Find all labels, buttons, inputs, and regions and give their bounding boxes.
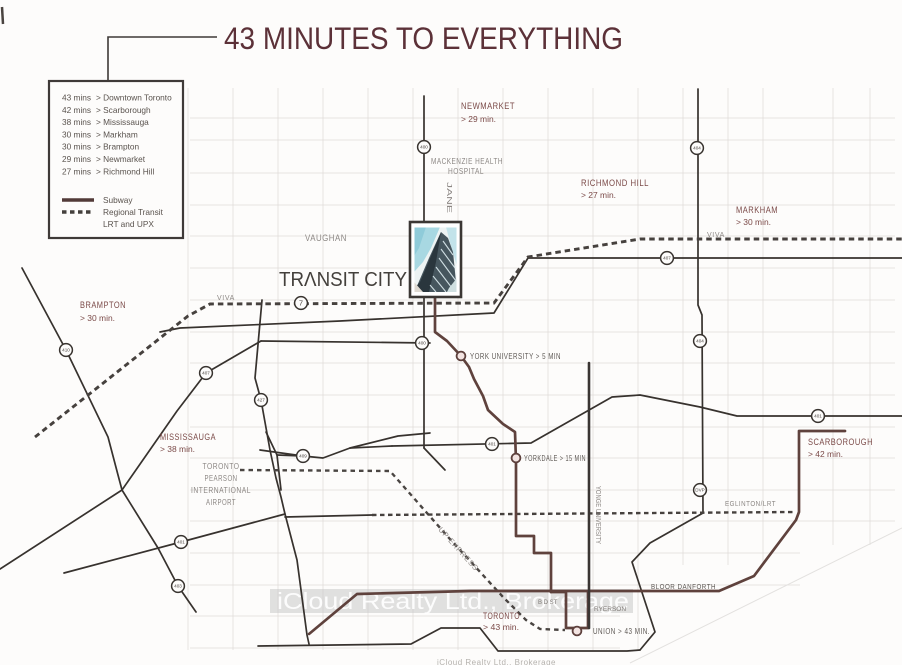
svg-text:PEARSON: PEARSON bbox=[205, 474, 238, 483]
svg-text:VIVA: VIVA bbox=[707, 232, 725, 239]
svg-text:43 mins: 43 mins bbox=[62, 93, 91, 103]
svg-text:> Downtown Toronto: > Downtown Toronto bbox=[96, 93, 172, 103]
svg-text:> 38 min.: > 38 min. bbox=[160, 444, 195, 454]
svg-text:MACKENZIE HEALTH: MACKENZIE HEALTH bbox=[431, 157, 503, 166]
svg-text:DVP: DVP bbox=[695, 488, 704, 493]
svg-text:RYERSON: RYERSON bbox=[594, 606, 626, 613]
svg-text:409: 409 bbox=[299, 454, 307, 459]
svg-text:TORONTO: TORONTO bbox=[483, 611, 520, 621]
svg-text:> 27 min.: > 27 min. bbox=[581, 190, 616, 200]
svg-text:TORONTO: TORONTO bbox=[203, 462, 240, 471]
svg-text:> 29 min.: > 29 min. bbox=[461, 114, 496, 124]
svg-text:BRAMPTON: BRAMPTON bbox=[80, 300, 126, 310]
svg-text:> Markham: > Markham bbox=[96, 129, 138, 139]
svg-text:404: 404 bbox=[693, 146, 701, 151]
svg-text:27 mins: 27 mins bbox=[62, 166, 91, 176]
svg-text:YORK UNIVERSITY > 5 MIN: YORK UNIVERSITY > 5 MIN bbox=[470, 352, 561, 361]
svg-text:> 30 min.: > 30 min. bbox=[80, 313, 115, 323]
svg-text:JANE: JANE bbox=[445, 182, 454, 213]
svg-text:MARKHAM: MARKHAM bbox=[736, 205, 778, 215]
svg-text:401: 401 bbox=[814, 414, 822, 419]
svg-text:AIRPORT: AIRPORT bbox=[206, 498, 236, 507]
svg-text:RICHMOND HILL: RICHMOND HILL bbox=[581, 178, 649, 188]
svg-text:400: 400 bbox=[420, 145, 428, 150]
svg-text:> Brampton: > Brampton bbox=[96, 142, 140, 152]
svg-text:NEWMARKET: NEWMARKET bbox=[461, 101, 515, 111]
svg-text:29 mins: 29 mins bbox=[62, 154, 91, 164]
svg-text:> Mississauga: > Mississauga bbox=[96, 117, 149, 127]
svg-text:UNION > 43 MIN.: UNION > 43 MIN. bbox=[593, 627, 650, 636]
svg-text:407: 407 bbox=[663, 256, 671, 261]
svg-text:403: 403 bbox=[174, 584, 182, 589]
svg-text:MISSISSAUGA: MISSISSAUGA bbox=[160, 432, 216, 442]
svg-text:410: 410 bbox=[62, 348, 70, 353]
svg-text:7: 7 bbox=[299, 299, 303, 308]
svg-text:400: 400 bbox=[418, 341, 426, 346]
svg-text:30 mins: 30 mins bbox=[62, 142, 91, 152]
svg-text:HOSPITAL: HOSPITAL bbox=[448, 167, 484, 176]
svg-text:42 mins: 42 mins bbox=[62, 105, 91, 115]
svg-text:Regional Transit: Regional Transit bbox=[103, 207, 164, 217]
svg-text:> Scarborough: > Scarborough bbox=[96, 105, 151, 115]
svg-text:427: 427 bbox=[257, 398, 265, 403]
svg-text:VAUGHAN: VAUGHAN bbox=[305, 233, 347, 243]
svg-text:401: 401 bbox=[177, 540, 185, 545]
svg-text:30 mins: 30 mins bbox=[62, 129, 91, 139]
svg-text:Subway: Subway bbox=[103, 195, 133, 205]
svg-text:> 42 min.: > 42 min. bbox=[808, 449, 843, 459]
svg-text:38 mins: 38 mins bbox=[62, 117, 91, 127]
svg-text:> 43 min.: > 43 min. bbox=[483, 622, 519, 632]
svg-text:401: 401 bbox=[488, 442, 496, 447]
svg-text:SCARBOROUGH: SCARBOROUGH bbox=[808, 437, 873, 447]
svg-text:43 MINUTES TO EVERYTHING: 43 MINUTES TO EVERYTHING bbox=[224, 20, 623, 56]
svg-text:EGLINTON/LRT: EGLINTON/LRT bbox=[725, 499, 776, 508]
svg-text:LRT and UPX: LRT and UPX bbox=[103, 219, 154, 229]
svg-text:YONGE UNIVERSITY: YONGE UNIVERSITY bbox=[594, 486, 601, 544]
svg-text:VIVA: VIVA bbox=[217, 295, 235, 302]
svg-text:> Newmarket: > Newmarket bbox=[96, 154, 146, 164]
svg-text:> 30 min.: > 30 min. bbox=[736, 217, 771, 227]
svg-text:INTERNATIONAL: INTERNATIONAL bbox=[191, 486, 251, 495]
svg-text:407: 407 bbox=[202, 371, 210, 376]
svg-text:YORKDALE > 15 MIN: YORKDALE > 15 MIN bbox=[524, 454, 586, 463]
svg-text:iCloud Realty Ltd., Brokerage: iCloud Realty Ltd., Brokerage bbox=[437, 658, 556, 665]
svg-text:404: 404 bbox=[696, 339, 704, 344]
svg-text:UP EXPRESS: UP EXPRESS bbox=[437, 525, 481, 572]
svg-text:TRΛNSIT CITY: TRΛNSIT CITY bbox=[279, 268, 407, 291]
svg-text:B D ST: B D ST bbox=[538, 600, 558, 606]
svg-text:> Richmond Hill: > Richmond Hill bbox=[96, 166, 154, 176]
svg-text:BLOOR DANFORTH: BLOOR DANFORTH bbox=[651, 582, 716, 591]
